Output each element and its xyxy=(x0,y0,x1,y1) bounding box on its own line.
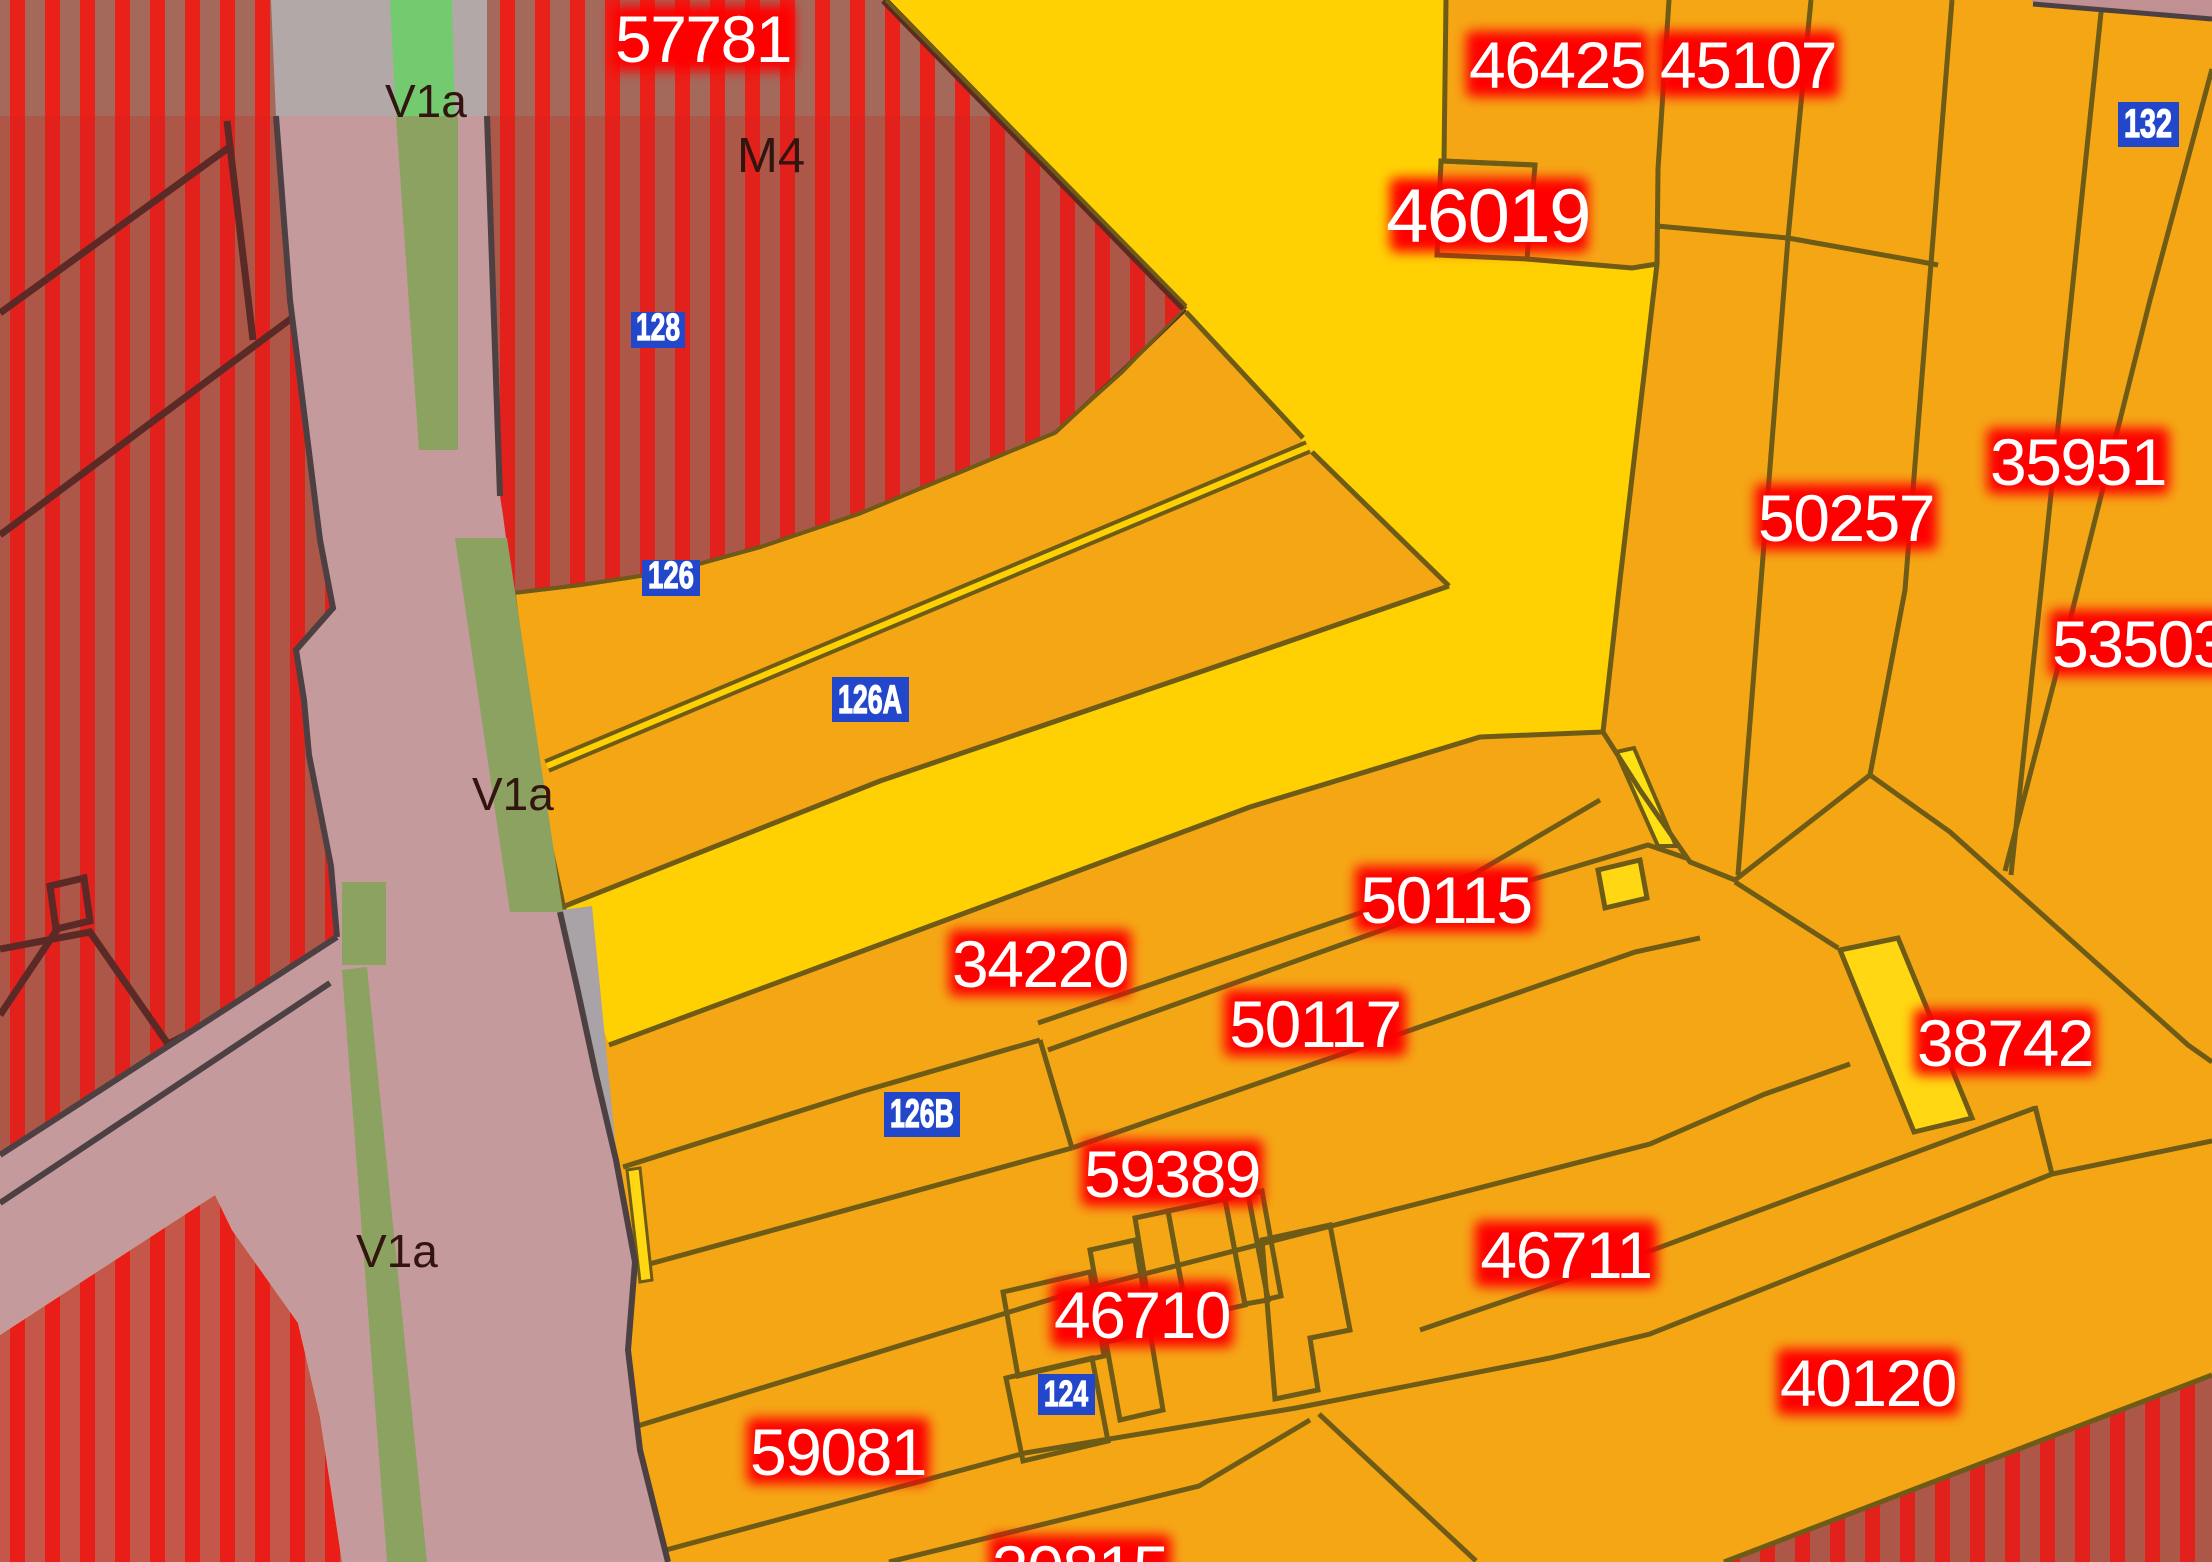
svg-text:124: 124 xyxy=(1044,1373,1088,1414)
svg-text:50257: 50257 xyxy=(1758,481,1934,555)
svg-text:46711: 46711 xyxy=(1480,1218,1651,1292)
svg-text:38742: 38742 xyxy=(1917,1006,2093,1080)
svg-text:40120: 40120 xyxy=(1780,1346,1956,1420)
svg-text:132: 132 xyxy=(2124,102,2172,146)
svg-text:V1a: V1a xyxy=(356,1225,438,1277)
svg-text:50117: 50117 xyxy=(1229,987,1400,1061)
svg-text:V1a: V1a xyxy=(472,768,554,820)
svg-text:46019: 46019 xyxy=(1386,174,1590,259)
svg-text:46425: 46425 xyxy=(1469,28,1645,102)
svg-text:59389: 59389 xyxy=(1084,1137,1260,1211)
svg-text:126A: 126A xyxy=(838,678,902,722)
svg-text:50115: 50115 xyxy=(1360,863,1531,937)
svg-text:53503: 53503 xyxy=(2052,607,2212,681)
svg-text:128: 128 xyxy=(636,307,680,349)
svg-text:57781: 57781 xyxy=(615,2,791,76)
svg-text:59081: 59081 xyxy=(750,1415,926,1489)
svg-text:46710: 46710 xyxy=(1054,1278,1230,1352)
svg-text:126B: 126B xyxy=(890,1092,954,1136)
svg-text:35951: 35951 xyxy=(1990,425,2166,499)
svg-text:30815: 30815 xyxy=(992,1532,1168,1562)
svg-text:V1a: V1a xyxy=(385,75,467,127)
svg-text:34220: 34220 xyxy=(952,927,1128,1001)
svg-text:45107: 45107 xyxy=(1660,28,1836,102)
svg-text:M4: M4 xyxy=(737,129,805,183)
svg-text:126: 126 xyxy=(648,555,694,597)
